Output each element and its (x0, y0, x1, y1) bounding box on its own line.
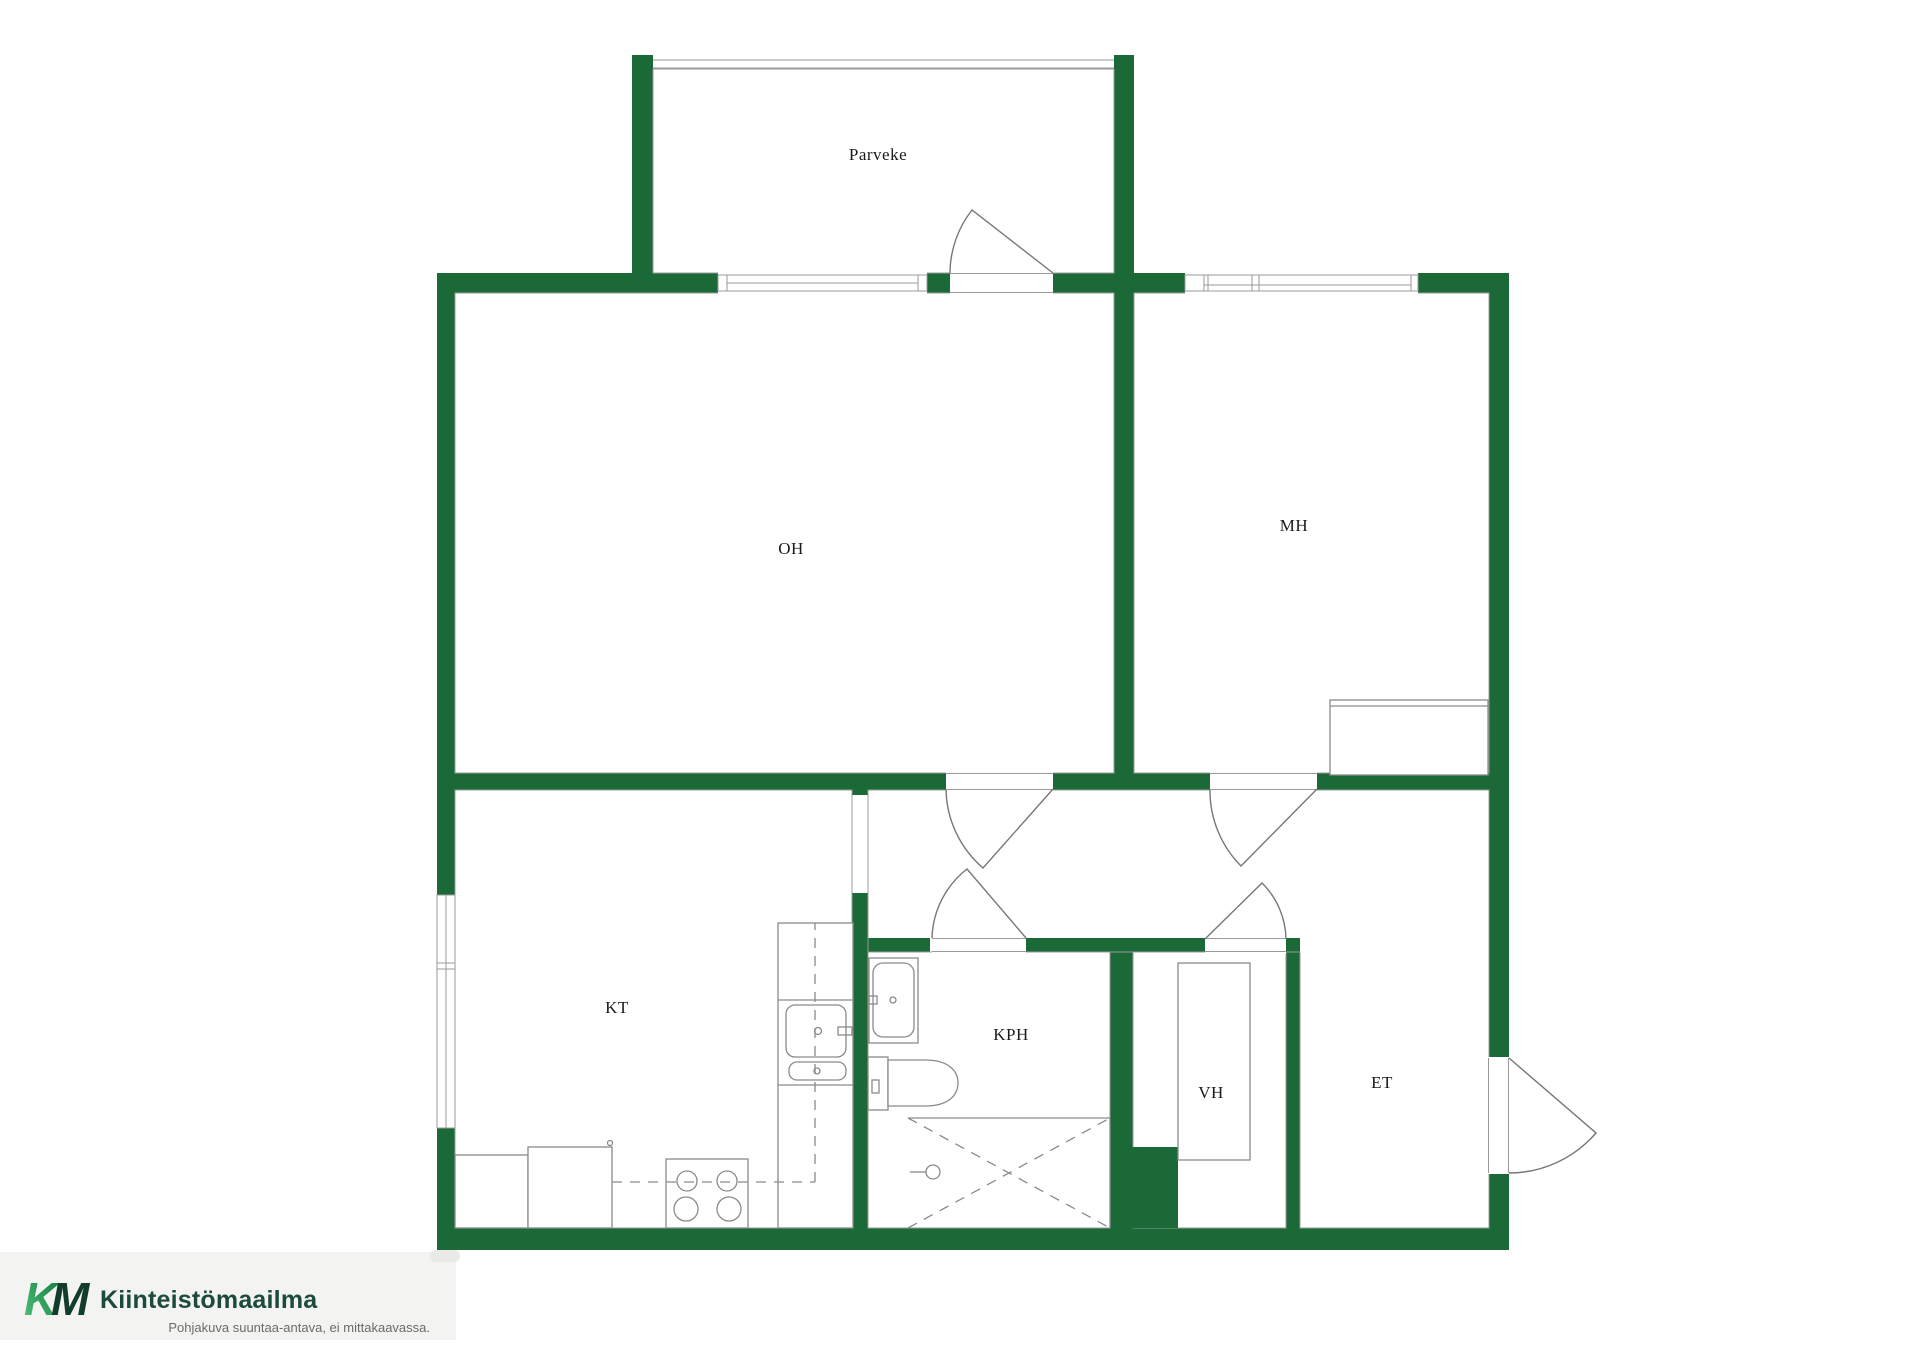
outline-oh (455, 293, 1114, 773)
balcony-railing-icon (653, 60, 1114, 68)
stove-icon (666, 1159, 748, 1228)
wall-kph-vh (1110, 938, 1133, 1147)
washbasin-icon (869, 958, 918, 1043)
windows (437, 60, 1418, 1128)
counter-corner-dot (608, 1141, 613, 1146)
company-name: Kiinteistömaailma (100, 1286, 317, 1315)
wall-bottom (437, 1228, 1509, 1250)
floor-drain-icon (926, 1165, 940, 1179)
kph-door-icon (932, 869, 1026, 938)
room-label-parveke: Parveke (849, 145, 907, 164)
opening-balcony-door (950, 272, 1053, 294)
opening-mh-door (1210, 772, 1317, 791)
wall-kph-top-right (1026, 938, 1110, 952)
room-label-mh: MH (1280, 516, 1308, 535)
room-outlines (455, 69, 1489, 1228)
floor-plan-page: Parveke OH MH KT KPH VH ET K M Kiinteist… (0, 0, 1920, 1357)
bathroom-fixtures (868, 958, 1110, 1228)
entrance-door-icon (1509, 1058, 1596, 1173)
wall-kt-hall (852, 893, 868, 1228)
room-label-et: ET (1371, 1073, 1393, 1092)
room-label-kt: KT (605, 998, 629, 1017)
logo-letter-m: M (51, 1276, 91, 1322)
room-label-kph: KPH (993, 1025, 1029, 1044)
wall-vh-et (1286, 938, 1300, 1228)
kitchen-appliance-icon (528, 1147, 612, 1228)
walls (437, 55, 1509, 1250)
opening-oh-door (946, 772, 1053, 791)
floor-plan-drawing: Parveke OH MH KT KPH VH ET (0, 0, 1920, 1357)
room-label-oh: OH (778, 539, 804, 558)
oh-door-icon (946, 789, 1053, 868)
kitchen-fixtures (455, 923, 853, 1228)
balcony-post-left (632, 55, 653, 273)
wall-kt-stub (852, 786, 868, 795)
km-logo-icon: K M (24, 1276, 104, 1322)
bed-icon (1330, 700, 1488, 775)
mh-door-icon (1210, 789, 1317, 866)
wardrobe-icon (1178, 963, 1250, 1160)
wall-kph-top-left (868, 938, 930, 952)
room-label-vh: VH (1198, 1083, 1224, 1102)
vh-door-icon (1205, 883, 1286, 939)
kitchen-counter-icon (455, 1155, 528, 1228)
wall-oh-mh (1114, 293, 1134, 775)
toilet-icon (868, 1057, 958, 1110)
balcony-door-icon (950, 210, 1053, 273)
opening-entrance-door (1488, 1057, 1510, 1174)
logo-area: K M Kiinteistömaailma Pohjakuva suuntaa-… (0, 1252, 456, 1340)
plan-disclaimer: Pohjakuva suuntaa-antava, ei mittakaavas… (130, 1320, 430, 1335)
logo-pill (430, 1250, 460, 1262)
outline-parveke (653, 69, 1114, 273)
shower-icon (908, 1118, 1110, 1228)
balcony-post-right (1114, 55, 1134, 273)
wall-block-kph-vh (1110, 1147, 1178, 1228)
